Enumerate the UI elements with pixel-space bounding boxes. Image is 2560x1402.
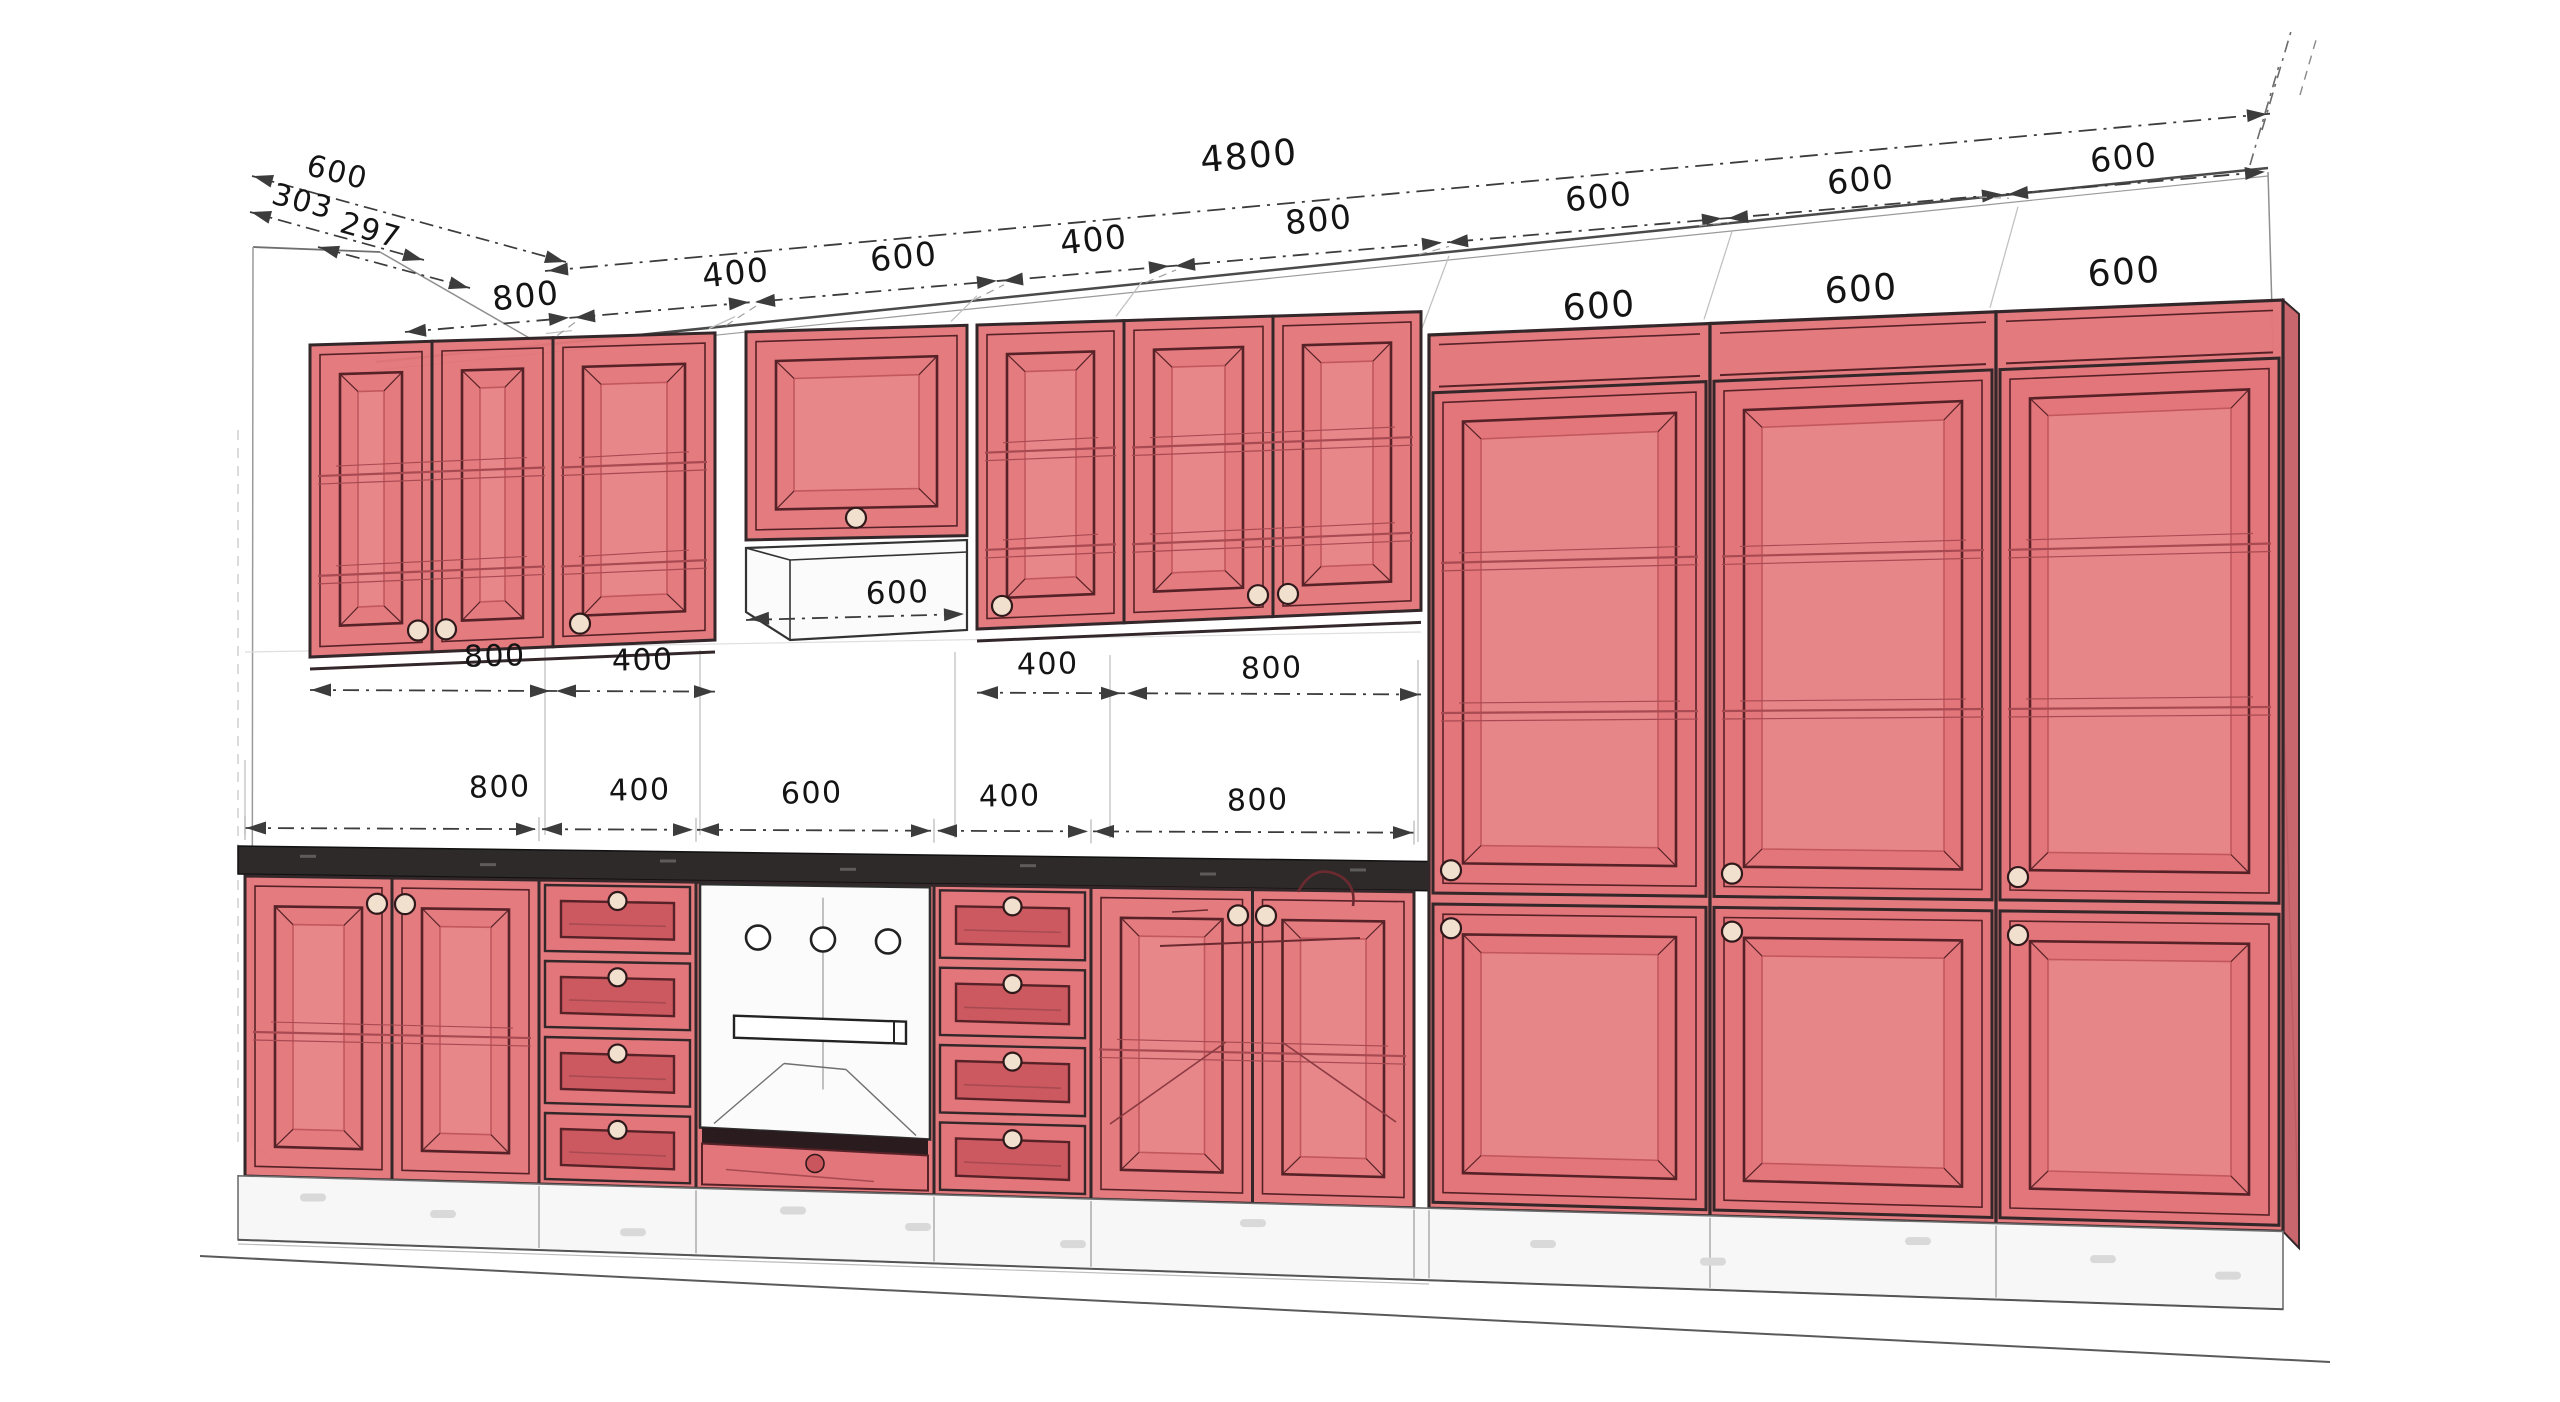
tall-cabinet-600-1 bbox=[1429, 324, 1710, 1216]
kitchen-elevation-drawing: 4800800400600400800600600600600303297600… bbox=[0, 0, 2560, 1402]
dim-label: 800 bbox=[1240, 650, 1303, 687]
door-knob bbox=[1228, 905, 1248, 925]
door-knob bbox=[1256, 906, 1276, 926]
dim-label: 600 bbox=[868, 234, 939, 280]
door-knob bbox=[1248, 585, 1268, 605]
door-knob bbox=[1441, 918, 1461, 938]
dim-label: 600 bbox=[865, 574, 930, 612]
sink-cabinet-800 bbox=[1091, 872, 1414, 1208]
door-knob bbox=[1441, 860, 1461, 880]
door-knob bbox=[1004, 1053, 1022, 1071]
door-knob bbox=[408, 620, 428, 640]
door-knob bbox=[2008, 867, 2028, 887]
door-knob bbox=[1004, 975, 1022, 993]
drawer-front bbox=[940, 890, 1085, 960]
door-knob bbox=[1722, 864, 1742, 884]
wall-cabinet-400-right bbox=[977, 321, 1124, 641]
door-knob bbox=[992, 596, 1012, 616]
drawer-front bbox=[545, 885, 690, 954]
dim-label: 600 bbox=[2088, 135, 2159, 181]
wall-cabinet-400-left bbox=[553, 333, 715, 659]
door-knob bbox=[436, 619, 456, 639]
door-knob bbox=[846, 508, 866, 528]
dim-label: 800 bbox=[463, 638, 526, 675]
hood-cabinet-600 bbox=[746, 325, 967, 540]
oven-cabinet-600 bbox=[696, 882, 934, 1195]
door-knob bbox=[395, 894, 415, 914]
door-knob bbox=[2008, 925, 2028, 945]
dim-label: 297 bbox=[336, 206, 405, 257]
dim-label: 400 bbox=[1058, 217, 1129, 263]
door-knob bbox=[1004, 1130, 1022, 1148]
door-knob bbox=[1278, 584, 1298, 604]
dim-label: 400 bbox=[978, 778, 1041, 815]
dim-label: 400 bbox=[611, 642, 674, 679]
drawer-front bbox=[545, 1113, 690, 1183]
wall-cabinet-800-left bbox=[310, 338, 553, 669]
dimension-depth-left: 600303297 bbox=[249, 148, 566, 294]
kitchen-elevation-svg: 4800800400600400800600600600600303297600… bbox=[0, 0, 2560, 1402]
door-knob bbox=[609, 892, 627, 910]
drawer-front bbox=[545, 1037, 690, 1107]
wall-cabinet-800-right bbox=[1124, 312, 1421, 635]
tall-cabinets bbox=[2283, 300, 2299, 1248]
tall-cabinet-600-3 bbox=[1996, 300, 2283, 1231]
drawer-front bbox=[940, 968, 1085, 1038]
drawer-front bbox=[545, 961, 690, 1030]
dim-label: 400 bbox=[700, 250, 771, 296]
door-knob bbox=[367, 894, 387, 914]
dim-label: 800 bbox=[490, 273, 561, 319]
dim-label: 600 bbox=[2086, 250, 2162, 296]
dim-label: 600 bbox=[1823, 267, 1899, 313]
door-knob bbox=[609, 1121, 627, 1139]
door-knob bbox=[570, 614, 590, 634]
base-cabinet-800-left bbox=[245, 876, 539, 1184]
door-knob bbox=[609, 968, 627, 986]
dim-label: 400 bbox=[608, 772, 671, 809]
dim-label: 800 bbox=[468, 769, 531, 806]
door-knob bbox=[1004, 897, 1022, 915]
dim-label: 600 bbox=[1825, 157, 1896, 203]
dim-label: 600 bbox=[1563, 174, 1634, 220]
dim-label: 400 bbox=[1016, 646, 1079, 683]
dim-label: 4800 bbox=[1199, 132, 1300, 181]
dim-label: 600 bbox=[1561, 284, 1637, 330]
door-knob bbox=[1722, 922, 1742, 942]
drawer-front bbox=[940, 1045, 1085, 1116]
dim-label: 600 bbox=[780, 775, 843, 812]
door-knob bbox=[609, 1045, 627, 1063]
dim-label: 800 bbox=[1283, 197, 1354, 243]
dim-label: 800 bbox=[1226, 782, 1289, 819]
tall-cabinet-600-2 bbox=[1710, 312, 1996, 1224]
hood-box bbox=[746, 540, 967, 640]
drawer-front bbox=[940, 1122, 1085, 1194]
